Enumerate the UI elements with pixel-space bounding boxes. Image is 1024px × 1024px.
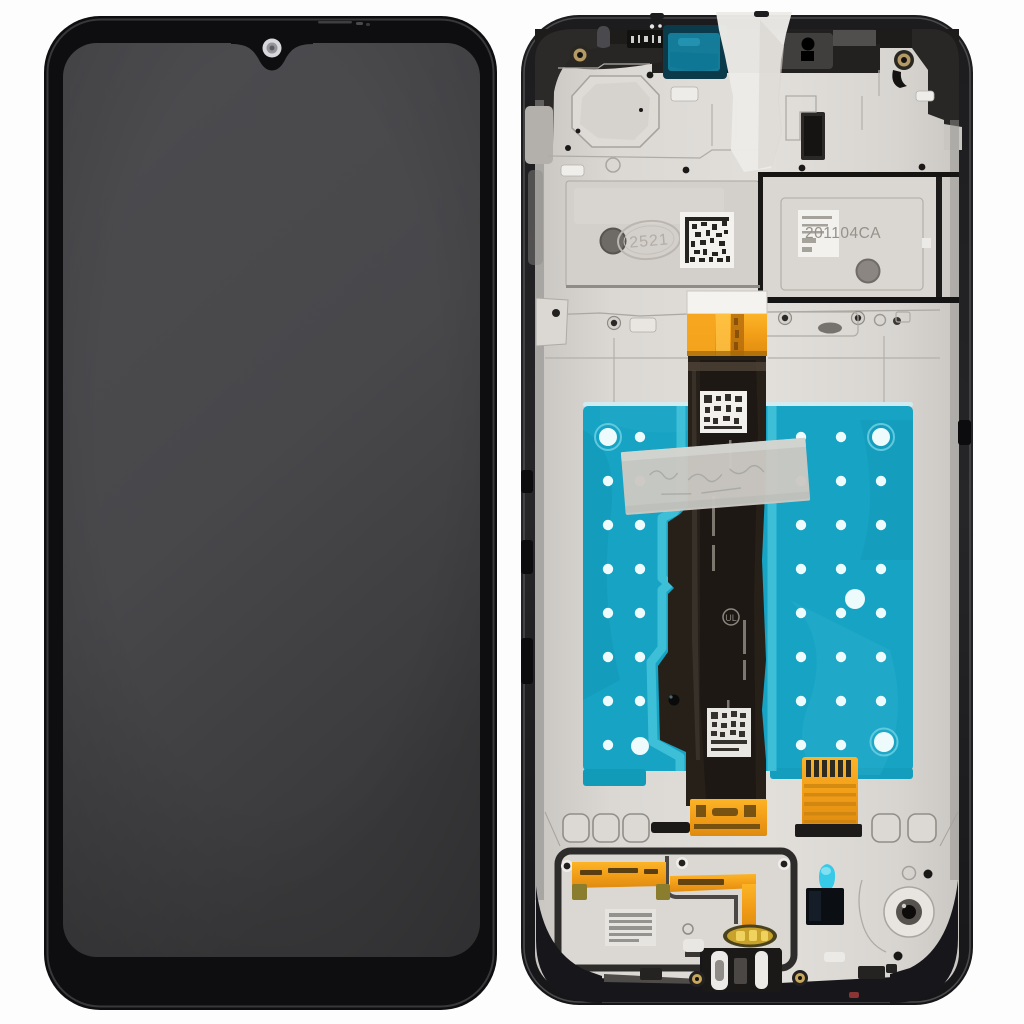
svg-text:2521: 2521 — [629, 231, 670, 251]
svg-text:201104CA: 201104CA — [805, 225, 881, 242]
svg-text:UL: UL — [725, 613, 737, 623]
